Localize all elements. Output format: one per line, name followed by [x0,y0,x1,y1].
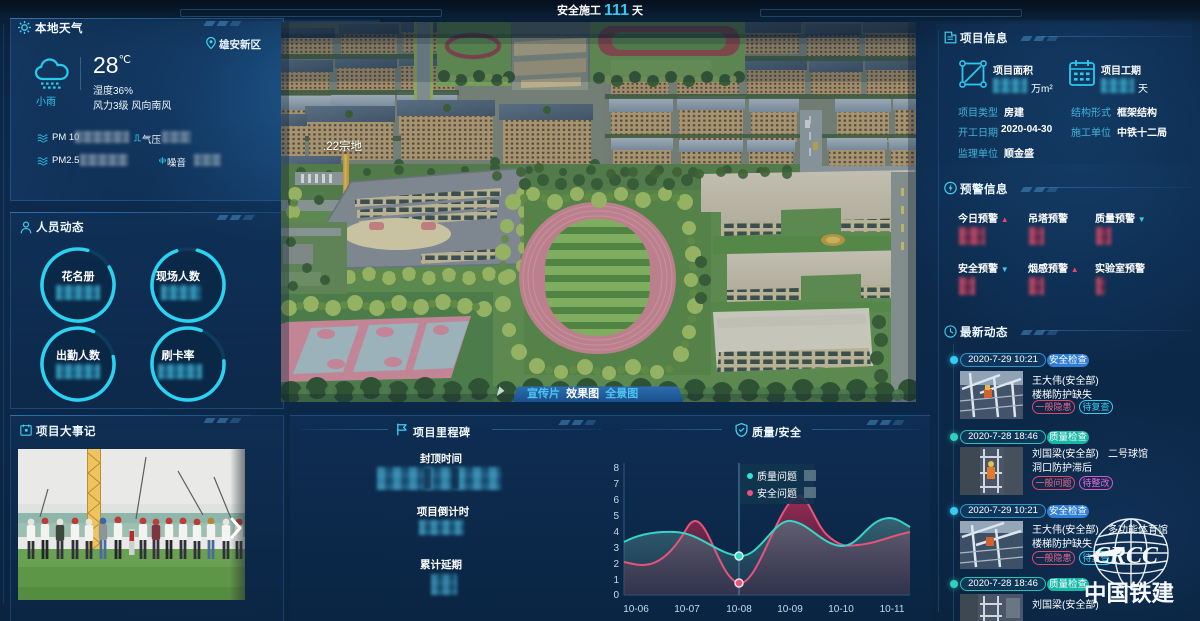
svg-text:10-10: 10-10 [828,604,854,615]
svg-text:10-07: 10-07 [674,604,700,615]
svg-text:5: 5 [613,511,619,522]
svg-text:4: 4 [613,527,619,538]
svg-text:10-09: 10-09 [777,604,803,615]
svg-text:10-11: 10-11 [880,604,905,615]
svg-text:2: 2 [613,559,619,570]
svg-text:8: 8 [613,463,619,474]
svg-text:.22宗地: .22宗地 [323,139,362,153]
svg-text:10-06: 10-06 [623,604,649,615]
svg-text:1: 1 [613,575,619,586]
svg-text:CRCC: CRCC [1094,543,1159,569]
svg-text:安全问题: 安全问题 [757,487,797,500]
svg-text:7: 7 [613,479,619,490]
svg-text:6: 6 [613,495,619,506]
svg-text:10-08: 10-08 [726,604,752,615]
svg-text:3: 3 [613,543,619,554]
svg-text:质量问题: 质量问题 [757,470,797,483]
svg-text:0: 0 [613,590,619,601]
svg-text:中国铁建: 中国铁建 [1084,581,1175,606]
